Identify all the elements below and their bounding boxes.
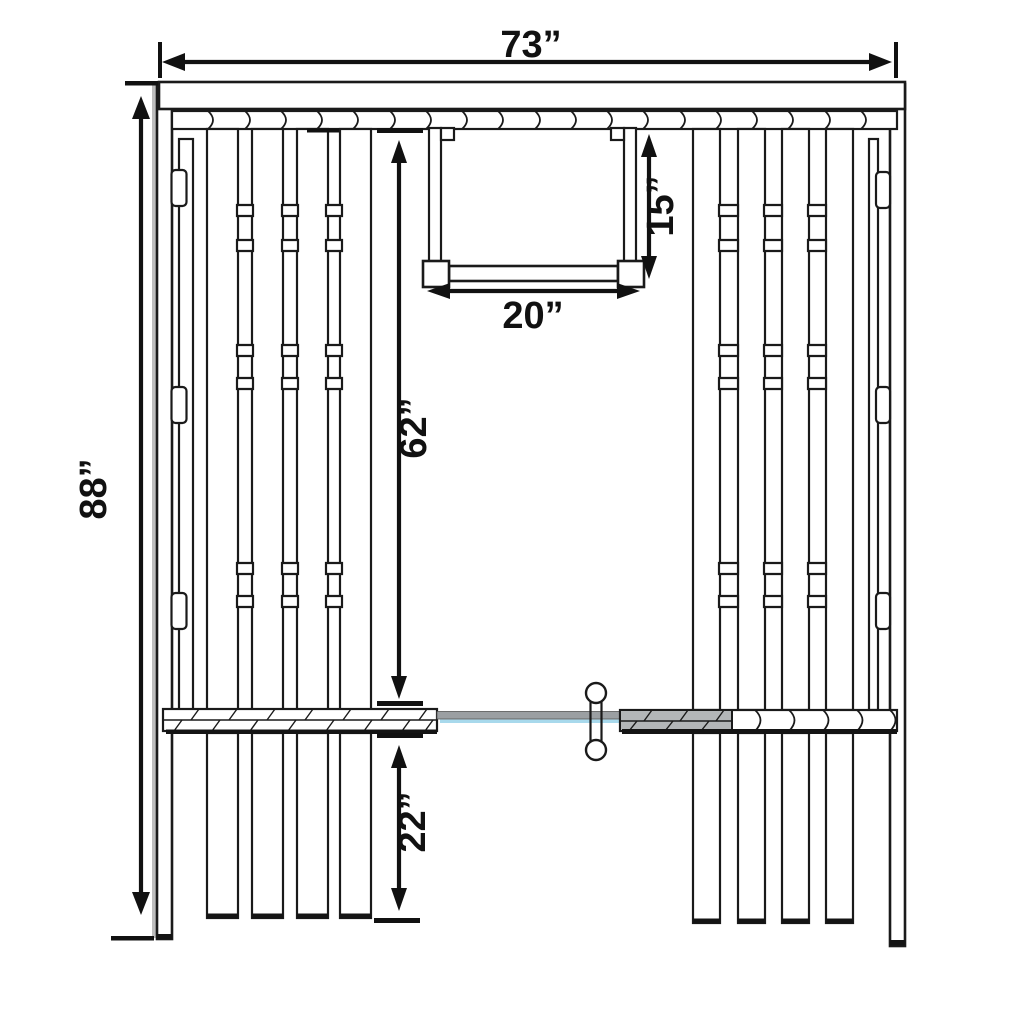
latch-knob-top — [586, 683, 606, 703]
hanger-rod-left — [429, 128, 441, 268]
left-slat-2 — [252, 129, 283, 710]
dim-88-arrowhead-top — [132, 96, 150, 119]
slatted-enclosure-dimension-diagram: 73” 88” 15” 20” 62” — [0, 0, 1024, 1024]
middle-rail — [163, 709, 897, 734]
left-post — [157, 84, 172, 939]
right-slat-3 — [782, 129, 809, 710]
left-hinge-middle — [172, 387, 187, 423]
rail-right-band-shadow — [622, 729, 897, 734]
left-wall-lower-slats — [207, 733, 371, 919]
dim-22-arrowhead-bottom — [391, 888, 407, 911]
dim-88-label: 88” — [73, 458, 115, 519]
dim-88-tick-bottom — [111, 936, 154, 941]
dim-62-arrowhead-top — [391, 140, 407, 163]
top-trim-row — [172, 111, 897, 129]
dim-62-reference-mark — [307, 129, 339, 133]
left-slat-3 — [297, 129, 328, 710]
top-beam — [159, 82, 905, 109]
latch-knob-bottom — [586, 740, 606, 760]
dim-62-tick-bottom — [377, 701, 423, 706]
dim-62-label: 62” — [393, 397, 435, 458]
slat-bottom-edge — [252, 914, 283, 919]
left-lower-slat-1 — [207, 733, 238, 918]
dim-73-tick-left — [158, 42, 162, 78]
hanger-bracket-left — [441, 128, 454, 140]
right-post-bottom-edge — [890, 940, 905, 946]
hanger-end-block-right — [618, 261, 644, 287]
left-slat-4 — [340, 129, 371, 710]
dim-22-tick-top — [377, 733, 423, 738]
hanger-rod-right — [624, 128, 636, 268]
right-slat-1 — [693, 129, 720, 710]
dimension-hanger-width: 20” — [427, 283, 640, 337]
dim-73-arrowhead-right — [869, 53, 892, 71]
diagram-canvas: 73” 88” 15” 20” 62” — [0, 0, 1024, 1024]
left-lower-slat-2 — [252, 733, 283, 918]
right-lower-slat-3 — [782, 733, 809, 923]
right-lower-slat-1 — [693, 733, 720, 923]
dim-88-tick-top — [125, 81, 158, 86]
slat-bottom-edge — [207, 914, 238, 919]
dimension-lower-panel-height: 22” — [374, 733, 434, 923]
right-hinge-top — [876, 172, 890, 208]
dim-88-arrowhead-bottom — [132, 892, 150, 915]
dim-22-arrowhead-top — [391, 745, 407, 768]
dim-62-arrowhead-bottom — [391, 676, 407, 699]
slat-bottom-edge — [826, 919, 853, 924]
right-wall-lower-slats — [693, 733, 853, 924]
dimension-hanger-height: 15” — [640, 134, 682, 279]
left-lower-slat-3 — [297, 733, 328, 918]
dim-22-label: 22” — [392, 791, 434, 852]
doorway-bar — [437, 712, 623, 720]
hanging-bar-assembly — [423, 128, 644, 287]
hanger-bracket-right — [611, 128, 624, 140]
hanger-end-block-left — [423, 261, 449, 287]
left-hinge-top — [172, 170, 187, 206]
right-wall-upper-panel — [693, 129, 890, 710]
dim-73-label: 73” — [500, 24, 561, 66]
left-hinge-bottom — [172, 593, 187, 629]
slat-bottom-edge — [297, 914, 328, 919]
dimension-overall-width: 73” — [158, 24, 898, 78]
dim-73-tick-right — [894, 42, 898, 78]
dim-73-arrowhead-left — [162, 53, 185, 71]
dim-15-label: 15” — [640, 175, 682, 236]
hanger-bar — [449, 266, 618, 281]
slat-bottom-edge — [738, 919, 765, 924]
left-slat-1 — [207, 129, 238, 710]
slat-bottom-edge — [693, 919, 720, 924]
right-lower-slat-4 — [826, 733, 853, 923]
dim-22-tick-bottom — [374, 918, 420, 923]
dimension-overall-height: 88” — [73, 81, 158, 941]
right-lower-slat-2 — [738, 733, 765, 923]
enclosure-structure — [152, 82, 905, 946]
dim-62-tick-top — [377, 128, 423, 133]
right-post — [890, 84, 905, 946]
right-hinge-middle — [876, 387, 890, 423]
water-line — [440, 720, 620, 724]
left-wall-upper-panel — [172, 129, 372, 710]
slat-bottom-edge — [782, 919, 809, 924]
left-lower-slat-4 — [340, 733, 371, 918]
dim-20-label: 20” — [502, 295, 563, 337]
slat-bottom-edge — [340, 914, 371, 919]
left-post-bottom-edge — [157, 934, 172, 940]
dim-15-arrowhead-top — [641, 134, 657, 157]
right-hinge-bottom — [876, 593, 890, 629]
right-slat-2 — [738, 129, 765, 710]
right-slat-4 — [826, 129, 853, 710]
